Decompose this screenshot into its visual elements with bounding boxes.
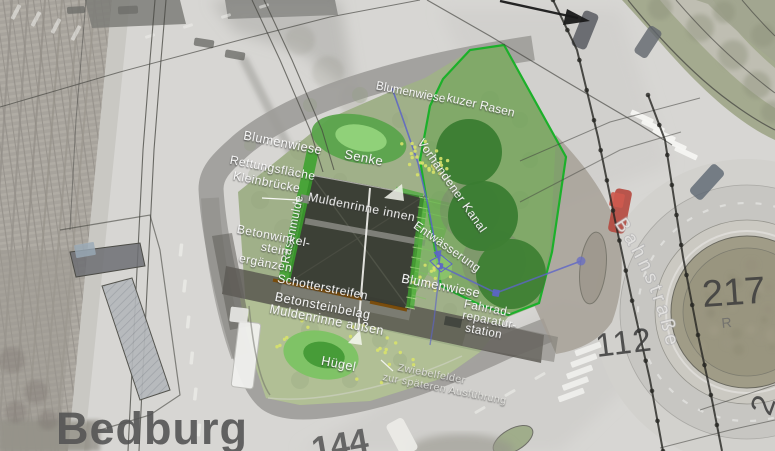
svg-text:217: 217	[701, 270, 767, 316]
svg-text:R: R	[721, 314, 733, 331]
svg-text:Bedburg: Bedburg	[56, 403, 248, 451]
svg-text:112: 112	[593, 320, 654, 364]
